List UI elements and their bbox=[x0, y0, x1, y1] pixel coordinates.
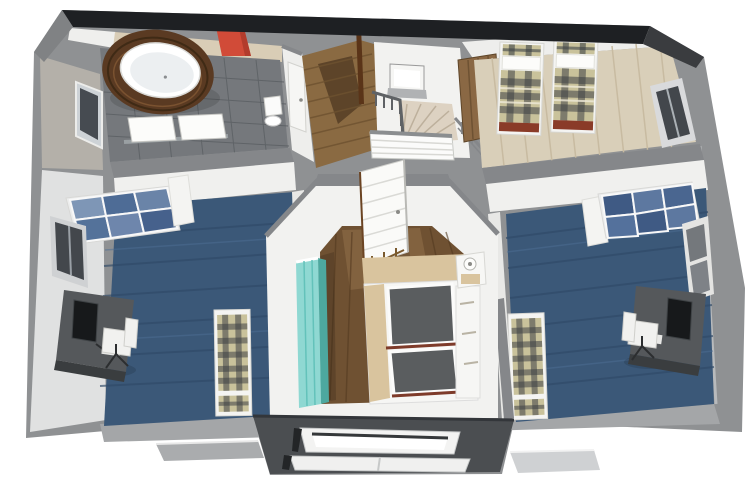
door-handle bbox=[299, 98, 303, 102]
landing-opening bbox=[387, 64, 427, 99]
toilet bbox=[264, 96, 282, 126]
floorplan-stage bbox=[0, 0, 750, 484]
left-wall-window bbox=[50, 216, 88, 288]
room-study-right bbox=[506, 182, 714, 422]
footboard bbox=[499, 122, 539, 132]
pillow bbox=[556, 54, 594, 68]
sink-left bbox=[128, 116, 176, 142]
monitor bbox=[666, 298, 692, 340]
wall-mirror bbox=[76, 82, 102, 148]
window-sill-right bbox=[510, 450, 600, 473]
bathroom-door bbox=[288, 62, 306, 132]
mattress-bottom bbox=[390, 348, 458, 394]
footboard bbox=[553, 120, 593, 130]
monitor bbox=[72, 300, 98, 342]
white-balustrade bbox=[370, 132, 454, 160]
twin-bed-right bbox=[551, 40, 598, 133]
single-bed-right bbox=[508, 313, 548, 420]
nightstand-with-lamp bbox=[456, 252, 486, 288]
room-master-bedroom bbox=[266, 160, 498, 420]
bay-window bbox=[253, 416, 514, 474]
door-handle bbox=[396, 210, 400, 214]
floorplan-3d-render bbox=[0, 0, 750, 484]
single-bed-left bbox=[214, 309, 252, 416]
aqua-wardrobe bbox=[296, 258, 329, 408]
bay-window-upper bbox=[292, 428, 460, 454]
window-sill-left bbox=[156, 441, 264, 461]
pillow bbox=[502, 56, 540, 70]
sink-right bbox=[178, 114, 226, 140]
twin-bed-left bbox=[497, 42, 544, 135]
mattress-top bbox=[388, 284, 455, 346]
